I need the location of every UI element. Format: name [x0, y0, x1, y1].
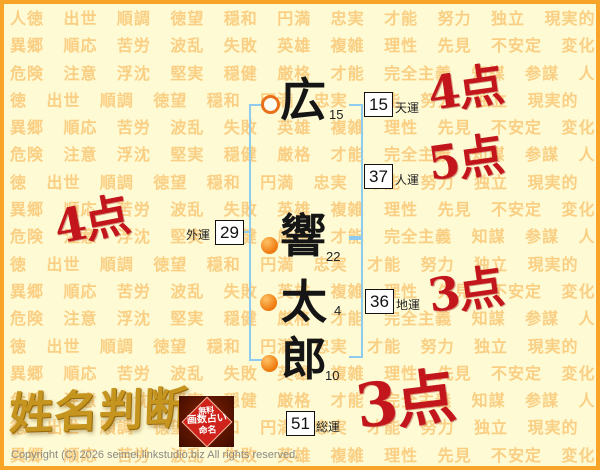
name-char-4: 郎	[281, 337, 327, 383]
person-fortune-label: 人運	[395, 171, 419, 188]
fortune-result-page: 人徳 出世 順調 徳望 穏和 円満 忠実 才能 努力 独立 現実的 異郷 順応 …	[0, 0, 600, 470]
ground-fortune-label: 地運	[396, 296, 420, 313]
name-char-3-strokes: 4	[334, 303, 341, 318]
given-char-dot-marker	[260, 294, 277, 311]
total-fortune-value-box: 51	[286, 411, 315, 436]
outer-fortune-bracket	[249, 104, 264, 361]
outer-fortune-label: 外運	[186, 226, 210, 243]
copyright-text: Copyright (C) 2026 seimei.linkstudio.biz…	[11, 449, 298, 461]
heaven-fortune-value-box: 15	[364, 92, 393, 117]
name-char-3: 太	[281, 280, 327, 326]
outer-fortune-value-box: 29	[215, 220, 244, 245]
name-char-1-strokes: 15	[329, 107, 343, 122]
person-fortune-score: 5点	[425, 131, 505, 187]
surname-char-ring-marker	[261, 95, 280, 114]
name-char-2-strokes: 22	[326, 249, 340, 264]
person-fortune-bracket	[349, 104, 363, 238]
ground-fortune-score: 3点	[425, 263, 505, 319]
given-char-dot-marker	[261, 355, 278, 372]
heaven-fortune-score: 4点	[425, 61, 505, 117]
person-fortune-value: 37	[369, 167, 388, 187]
heaven-fortune-value: 15	[369, 95, 388, 115]
total-fortune-value: 51	[291, 414, 310, 434]
heaven-fortune-label: 天運	[395, 99, 419, 116]
ground-fortune-bracket	[349, 238, 363, 358]
outer-fortune-value: 29	[220, 223, 239, 243]
outer-fortune-score: 4点	[50, 191, 131, 250]
name-char-2: 響	[280, 214, 326, 260]
ground-fortune-value: 36	[370, 292, 389, 312]
site-logo: 姓名判断	[8, 387, 189, 437]
free-naming-stamp: 無料 画数占い 命名	[179, 396, 234, 447]
name-char-1: 広	[280, 78, 326, 124]
total-fortune-label: 総運	[316, 418, 340, 435]
name-char-4-strokes: 10	[325, 368, 339, 383]
given-char-dot-marker	[261, 237, 278, 254]
total-fortune-score: 3点	[353, 366, 457, 437]
person-fortune-value-box: 37	[364, 164, 393, 189]
ground-fortune-value-box: 36	[365, 289, 394, 314]
